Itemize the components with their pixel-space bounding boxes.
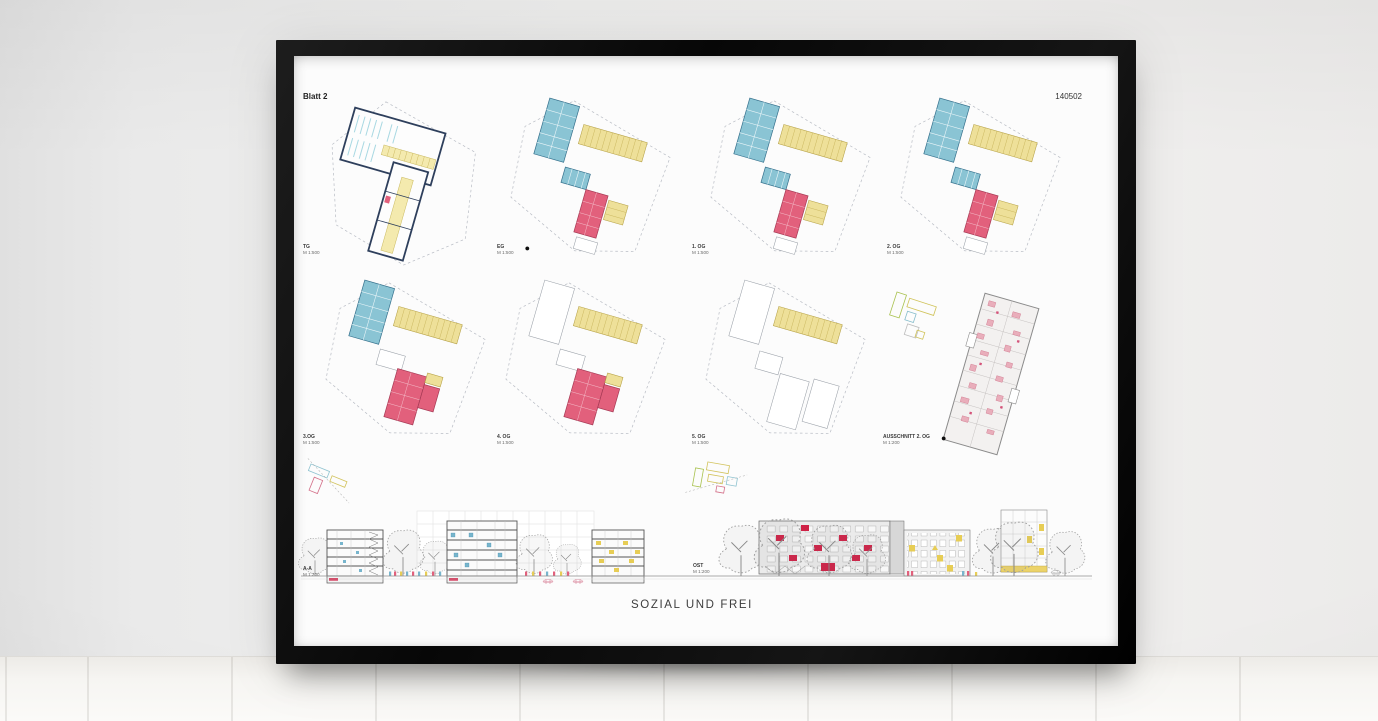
north-arrow-icon: ●	[941, 434, 946, 443]
floorplan-og2-drawing	[889, 100, 1069, 258]
floorplan-og1-drawing	[699, 100, 879, 258]
plan-scale: M 1:500	[303, 250, 320, 256]
site-key-sketch	[297, 458, 359, 505]
plan-label-tg: TG M 1:500	[303, 244, 320, 256]
poster-title: SOZIAL UND FREI	[294, 599, 1118, 611]
floorplan-og3-drawing	[314, 282, 494, 440]
plan-label-og1: 1. OG M 1:500	[692, 244, 709, 256]
poster: Blatt 2 140502	[294, 56, 1118, 646]
section-scale: M 1:200	[693, 569, 710, 575]
floorplan-og5	[694, 282, 874, 440]
floorplan-tg-drawing	[314, 100, 494, 268]
site-key-sketch	[885, 292, 937, 341]
section-scale: M 1:200	[303, 572, 320, 578]
plan-scale: M 1:500	[303, 440, 320, 446]
plan-scale: M 1:500	[887, 250, 904, 256]
plan-scale: M 1:500	[692, 250, 709, 256]
floorplan-ausschnitt-drawing	[879, 282, 1064, 444]
floorplan-eg-drawing	[499, 100, 679, 258]
plan-label-og3: 3.OG M 1:500	[303, 434, 320, 446]
plan-label-og5: 5. OG M 1:500	[692, 434, 709, 446]
floorplan-og1	[699, 100, 879, 258]
scene: Blatt 2 140502	[0, 0, 1378, 720]
plan-scale: M 1:500	[497, 250, 514, 256]
plan-scale: M 1:200	[883, 440, 930, 446]
floorplan-ausschnitt	[879, 282, 1064, 444]
plan-scale: M 1:500	[692, 440, 709, 446]
floorplan-eg	[499, 100, 679, 258]
plan-label-ausschnitt: AUSSCHNITT 2. OG M 1:200 ●	[883, 434, 946, 446]
section-label-aa: A-A M 1:200	[303, 566, 320, 578]
plan-label-eg: EG M 1:500 ●	[497, 244, 530, 256]
site-key-sketch	[685, 459, 748, 503]
plan-label-og4: 4. OG M 1:500	[497, 434, 514, 446]
section-label-ost: OST M 1:200	[693, 563, 710, 575]
floorplan-og4-drawing	[494, 282, 674, 440]
floorplan-og5-drawing	[694, 282, 874, 440]
floorplan-og2	[889, 100, 1069, 258]
plan-label-og2: 2. OG M 1:500	[887, 244, 904, 256]
plan-scale: M 1:500	[497, 440, 514, 446]
north-arrow-icon: ●	[525, 244, 530, 253]
floorplan-tg	[314, 100, 494, 268]
picture-frame: Blatt 2 140502	[276, 40, 1136, 664]
floorplan-og4	[494, 282, 674, 440]
floorplan-og3	[314, 282, 494, 440]
